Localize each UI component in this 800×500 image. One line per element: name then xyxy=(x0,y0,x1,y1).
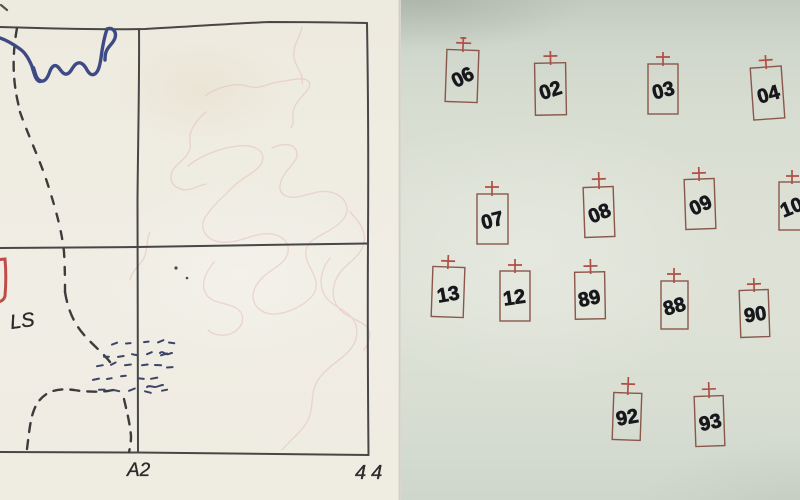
svg-text:02: 02 xyxy=(537,77,565,105)
svg-text:10: 10 xyxy=(777,193,800,222)
svg-text:A2: A2 xyxy=(126,460,151,481)
svg-text:90: 90 xyxy=(743,303,768,328)
svg-text:07: 07 xyxy=(479,208,506,235)
svg-text:04: 04 xyxy=(755,81,783,109)
svg-text:13: 13 xyxy=(435,282,461,308)
svg-text:08: 08 xyxy=(585,199,614,228)
svg-text:09: 09 xyxy=(686,191,715,220)
svg-text:89: 89 xyxy=(576,286,602,312)
svg-text:93: 93 xyxy=(697,410,723,436)
svg-text:88: 88 xyxy=(661,293,688,320)
svg-text:06: 06 xyxy=(448,63,478,93)
svg-text:12: 12 xyxy=(502,286,527,311)
svg-text:03: 03 xyxy=(650,78,677,105)
svg-text:44: 44 xyxy=(355,462,387,484)
svg-text:LS: LS xyxy=(9,309,37,334)
svg-text:92: 92 xyxy=(614,405,640,431)
